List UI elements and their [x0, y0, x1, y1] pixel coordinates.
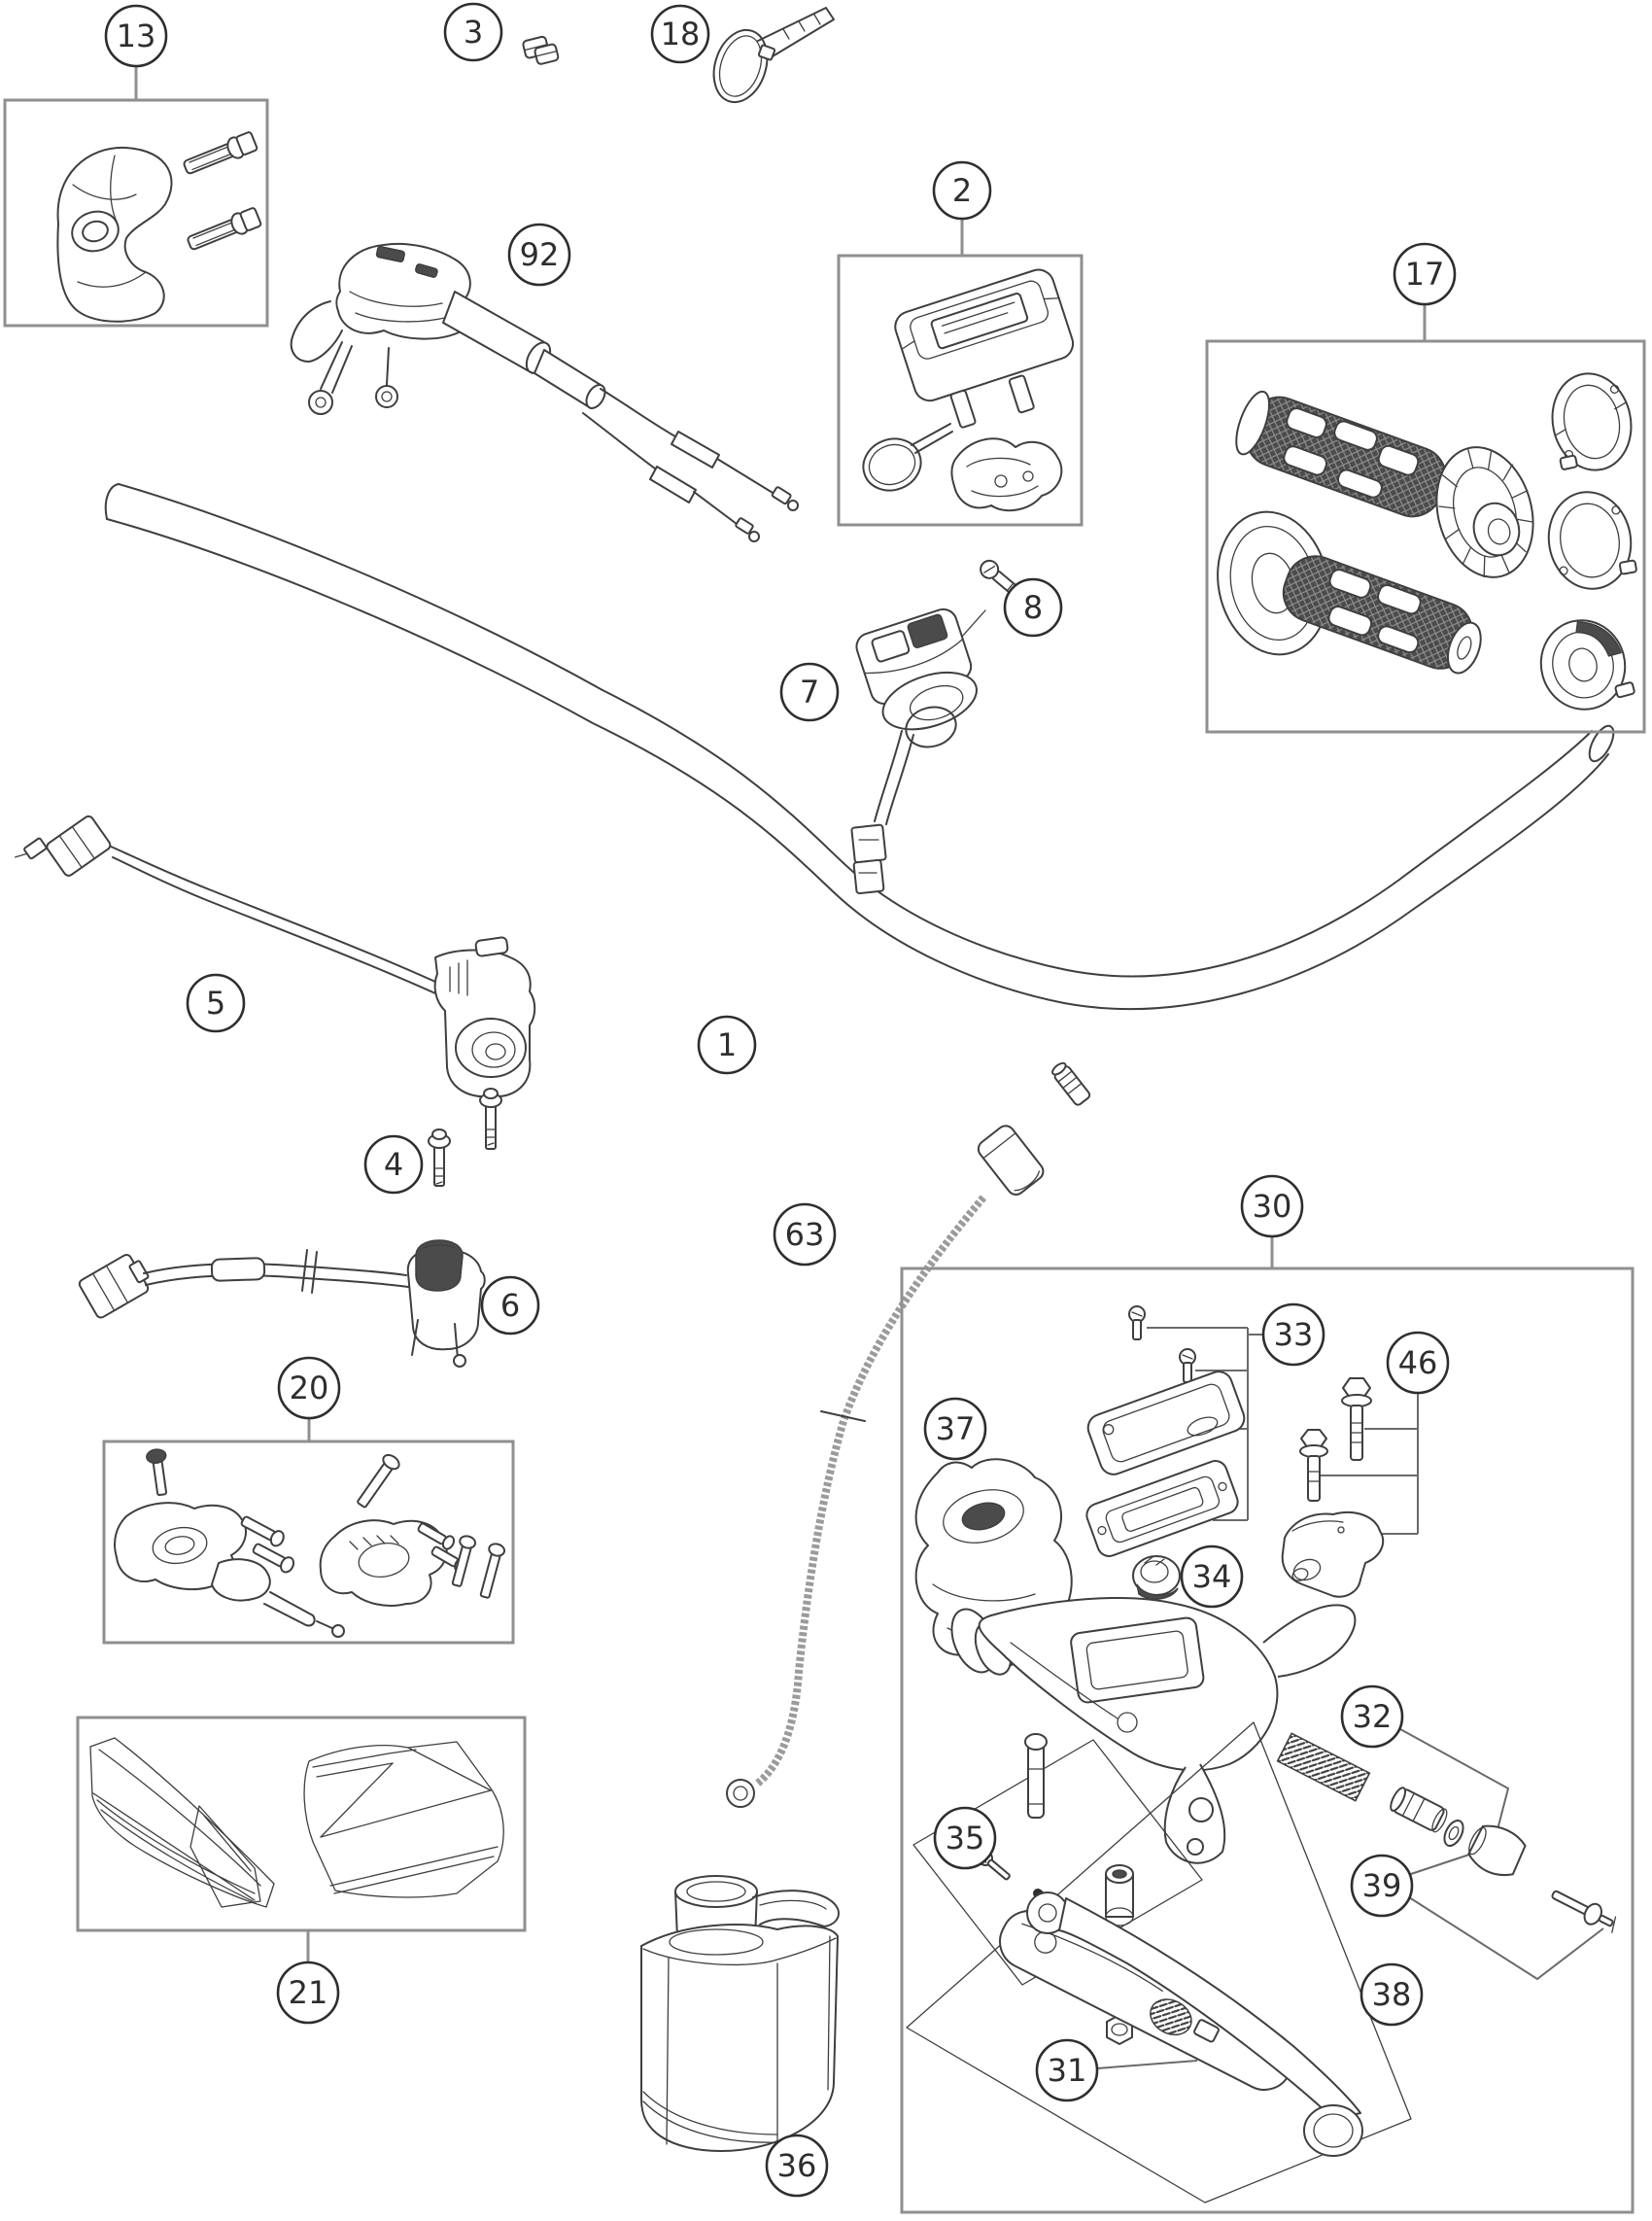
part-group-20 — [104, 1418, 513, 1643]
callout-30[interactable]: 30 — [1242, 1176, 1302, 1236]
part-group-63 — [727, 1060, 1091, 1807]
part-group-36 — [641, 1876, 839, 2151]
callout-31-leader — [1097, 2061, 1197, 2068]
callout-33-label: 33 — [1274, 1316, 1314, 1353]
part-group-6 — [78, 1240, 485, 1367]
part-group-3 — [523, 34, 560, 67]
callout-5-label: 5 — [206, 985, 225, 1022]
part-group-17 — [1205, 304, 1644, 732]
callout-21-label: 21 — [289, 1974, 328, 2011]
callout-31-label: 31 — [1048, 2052, 1087, 2089]
callout-7-label: 7 — [800, 674, 819, 711]
clamp-bolt-short — [1300, 1430, 1327, 1501]
part-group-5 — [14, 807, 534, 1096]
bushing-drawing — [1106, 1865, 1133, 1926]
pivot-pin-drawing — [1025, 1734, 1047, 1818]
callout-21[interactable]: 21 — [278, 1962, 338, 2023]
callout-32-label: 32 — [1353, 1698, 1393, 1735]
callout-37[interactable]: 37 — [925, 1399, 985, 1459]
callout-8[interactable]: 8 — [1005, 579, 1061, 636]
callout-36[interactable]: 36 — [767, 2135, 827, 2196]
callout-18[interactable]: 18 — [652, 6, 708, 62]
callout-92[interactable]: 92 — [509, 225, 569, 285]
grip-upper-drawing — [1229, 386, 1454, 525]
callout-17-label: 17 — [1405, 256, 1445, 293]
pushrod-drawing — [1548, 1885, 1620, 1935]
clip-drawing — [523, 34, 560, 67]
grip-donut-drawing — [1532, 610, 1636, 718]
callout-13[interactable]: 13 — [106, 6, 166, 66]
bar-clamp-drawing — [57, 148, 171, 322]
callout-5[interactable]: 5 — [188, 975, 244, 1031]
part-group-2 — [839, 219, 1089, 525]
part-group-30 — [902, 1236, 1633, 2212]
callout-63[interactable]: 63 — [774, 1204, 835, 1265]
lock-ring-2-drawing — [1541, 485, 1638, 595]
handlebar-drawing — [106, 484, 1619, 1009]
clamp-bolt-1 — [182, 130, 258, 178]
bottle-body-drawing — [641, 1925, 838, 2151]
bracket-drawing — [951, 438, 1061, 510]
callout-4[interactable]: 4 — [365, 1136, 422, 1193]
callout-7[interactable]: 7 — [781, 664, 838, 720]
callout-92-label: 92 — [520, 236, 560, 273]
kit-bolt-left — [146, 1448, 171, 1496]
callout-20[interactable]: 20 — [279, 1358, 339, 1418]
callout-33[interactable]: 33 — [1263, 1304, 1324, 1365]
map-switch-drawing — [853, 606, 985, 742]
callout-6-label: 6 — [500, 1287, 520, 1324]
callout-46-label: 46 — [1398, 1344, 1438, 1381]
callout-38[interactable]: 38 — [1361, 1964, 1422, 2025]
callout-3-label: 3 — [464, 14, 483, 51]
part-group-4 — [429, 1089, 501, 1186]
callout-2-label: 2 — [952, 172, 972, 209]
piston-kit-drawing — [1278, 1729, 1621, 1979]
grip-lower-drawing — [1275, 548, 1491, 680]
meter-device-drawing — [891, 265, 1088, 441]
reservoir-cover-drawing — [1084, 1368, 1248, 1477]
callout-30-label: 30 — [1253, 1188, 1292, 1225]
wire-connector-6 — [78, 1250, 155, 1319]
callout-3[interactable]: 3 — [445, 4, 501, 60]
callout-2[interactable]: 2 — [934, 162, 990, 219]
handlebar-end-opening — [1585, 722, 1619, 765]
clamp-bolt-2 — [186, 206, 262, 254]
piston-drawing — [1388, 1786, 1449, 1833]
callout-46[interactable]: 46 — [1388, 1333, 1448, 1393]
callout-20-label: 20 — [290, 1370, 329, 1406]
callout-32[interactable]: 32 — [1342, 1686, 1402, 1747]
callout-1-label: 1 — [717, 1026, 737, 1063]
handguard-left-drawing — [90, 1738, 274, 1907]
callout-8-label: 8 — [1023, 589, 1043, 626]
parts-diagram-page: 13 3 18 2 92 17 8 7 5 1 4 63 30 6 20 33 … — [0, 0, 1652, 2221]
callout-6[interactable]: 6 — [482, 1277, 538, 1334]
exploded-parts-diagram: 13 3 18 2 92 17 8 7 5 1 4 63 30 6 20 33 … — [0, 0, 1652, 2221]
lock-ring-1-drawing — [1543, 366, 1639, 477]
lever-kit-drawing — [907, 1722, 1411, 2203]
screw-4a-drawing — [429, 1129, 450, 1186]
callout-35-label: 35 — [946, 1820, 985, 1857]
callout-39[interactable]: 39 — [1352, 1856, 1412, 1916]
callout-18-label: 18 — [661, 16, 701, 52]
clamp-bolt-long — [1342, 1378, 1371, 1460]
handguard-right-drawing — [304, 1742, 503, 1897]
part-group-18 — [706, 8, 834, 109]
callout-17[interactable]: 17 — [1394, 244, 1455, 304]
callout-1[interactable]: 1 — [699, 1017, 755, 1073]
callout-13-label: 13 — [117, 17, 156, 54]
cup-seal-drawing — [1462, 1818, 1529, 1882]
part-group-92 — [292, 244, 798, 541]
callout-63-label: 63 — [785, 1216, 825, 1253]
kit-bolt-right — [354, 1452, 401, 1510]
reservoir-cover-parts — [1084, 1306, 1262, 1559]
callout-37-label: 37 — [936, 1410, 976, 1447]
callout-36-label: 36 — [777, 2147, 817, 2184]
callout-35[interactable]: 35 — [935, 1808, 995, 1868]
cap-34-drawing — [1133, 1556, 1180, 1599]
callout-31[interactable]: 31 — [1037, 2040, 1097, 2100]
part-group-21 — [78, 1718, 525, 1962]
part-group-13 — [5, 66, 267, 326]
part-group-7 — [851, 557, 1027, 893]
throttle-flange-drawing — [1423, 436, 1547, 588]
callout-34[interactable]: 34 — [1182, 1546, 1242, 1607]
cable-barrel — [975, 1123, 1047, 1198]
callout-39-label: 39 — [1362, 1867, 1402, 1904]
callout-34-label: 34 — [1192, 1558, 1232, 1595]
screw-4b-drawing — [480, 1089, 501, 1149]
clamp-parts-46 — [1283, 1378, 1418, 1597]
cable-adjuster-tip — [1050, 1060, 1091, 1106]
wire-connector-5 — [14, 807, 112, 895]
callout-38-label: 38 — [1372, 1976, 1412, 2013]
bar-clamp-half-drawing — [1283, 1512, 1383, 1597]
callout-4-label: 4 — [384, 1146, 403, 1183]
